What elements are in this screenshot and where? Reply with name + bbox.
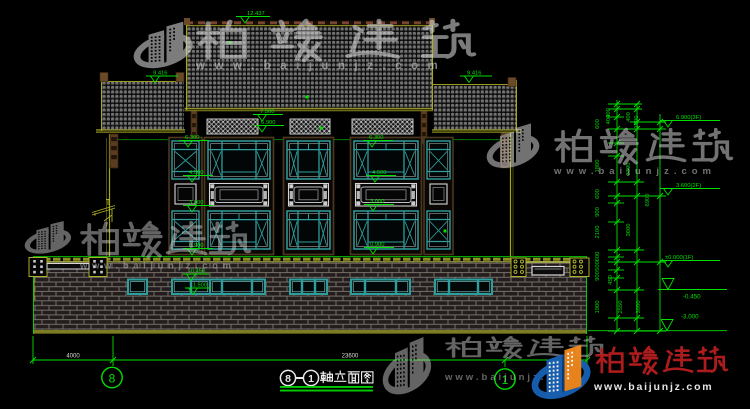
svg-text:www.baijunjz.com: www.baijunjz.com: [593, 381, 713, 393]
svg-text:-0.450: -0.450: [683, 294, 701, 301]
svg-text:600: 600: [595, 189, 601, 199]
svg-text:0.900: 0.900: [370, 242, 385, 248]
svg-text:6.300: 6.300: [369, 135, 384, 141]
svg-text:3.000: 3.000: [370, 199, 385, 205]
svg-text:6.900(3F): 6.900(3F): [676, 115, 701, 121]
svg-text:www.baijunjz.com: www.baijunjz.com: [79, 261, 236, 272]
svg-text:900: 900: [595, 207, 601, 217]
svg-text:6.900: 6.900: [261, 120, 276, 126]
svg-text:4.500: 4.500: [189, 170, 204, 176]
svg-text:3.000: 3.000: [189, 200, 204, 206]
svg-text:4000: 4000: [66, 354, 80, 360]
svg-text:3000: 3000: [636, 301, 642, 314]
svg-text:9.416: 9.416: [153, 71, 168, 77]
svg-text:-1.500: -1.500: [191, 283, 207, 289]
svg-text:2550: 2550: [618, 301, 624, 314]
svg-text:www.baijunjz.com: www.baijunjz.com: [553, 166, 716, 177]
svg-text:1000: 1000: [634, 116, 640, 129]
svg-text:12.437: 12.437: [247, 11, 265, 17]
svg-text:www.baijunjz.com: www.baijunjz.com: [195, 60, 447, 72]
svg-text:6900: 6900: [645, 194, 651, 207]
svg-text:23600: 23600: [342, 354, 359, 360]
svg-text:-3.000: -3.000: [681, 314, 699, 321]
svg-text:±0.000(1F): ±0.000(1F): [665, 255, 693, 261]
svg-text:4.500: 4.500: [372, 170, 387, 176]
svg-text:500: 500: [595, 261, 601, 271]
svg-text:400: 400: [606, 115, 612, 125]
svg-text:600: 600: [595, 119, 601, 129]
svg-text:8: 8: [285, 373, 291, 385]
svg-text:900: 900: [595, 271, 601, 281]
svg-text:400: 400: [626, 112, 632, 122]
svg-text:3.600(2F): 3.600(2F): [676, 183, 701, 189]
svg-text:450: 450: [608, 275, 614, 285]
svg-text:2100: 2100: [595, 226, 601, 239]
svg-text:6.300: 6.300: [185, 135, 200, 141]
svg-text:9.416: 9.416: [467, 71, 482, 77]
svg-text:600: 600: [595, 252, 601, 262]
svg-text:8: 8: [109, 372, 116, 386]
svg-text:1: 1: [308, 373, 314, 385]
svg-text:1900: 1900: [595, 301, 601, 314]
svg-text:3600: 3600: [626, 224, 632, 237]
svg-text:7.500: 7.500: [260, 109, 275, 115]
